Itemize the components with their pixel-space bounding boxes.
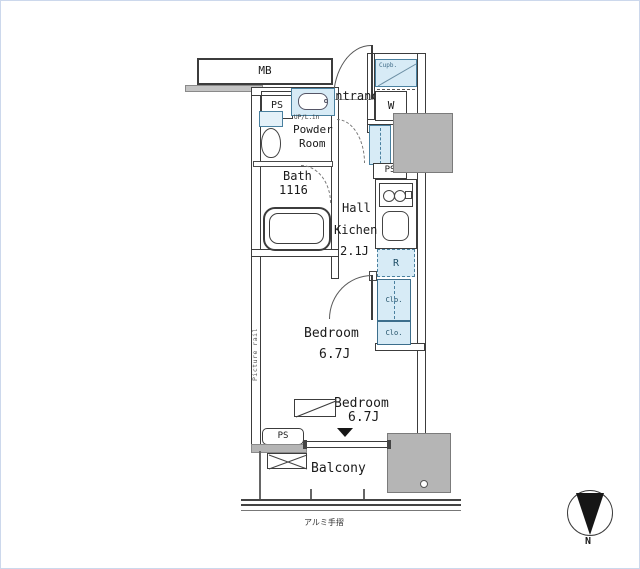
handrail-line-2	[241, 504, 461, 506]
pillar-top	[393, 113, 453, 173]
wall-left	[251, 87, 261, 451]
bedroom-door-arc	[329, 275, 372, 319]
closet-upper-dash	[394, 281, 395, 319]
ac-outdoor-unit	[267, 453, 307, 469]
window-frame-right	[387, 440, 391, 449]
stove	[379, 183, 413, 207]
bathtub	[263, 207, 331, 251]
bathtub-inner	[269, 213, 324, 244]
handrail-line-3	[241, 510, 461, 511]
picture-rail-label: Picture rail	[251, 297, 259, 381]
bedroom-door-leaf	[371, 275, 373, 320]
window-frame-left	[303, 440, 307, 449]
cupboard-label: Cupb.	[379, 63, 397, 70]
kitchen-size-label: 2.1J	[340, 245, 369, 258]
balcony-label: Balcony	[311, 462, 366, 476]
kitchen-label: Kichen	[334, 224, 377, 237]
ps-bottom-box: PS	[262, 428, 304, 445]
wall-right-upper	[417, 53, 426, 117]
bath-door-arc	[301, 165, 331, 203]
window-center-marker	[337, 428, 353, 437]
counter-shelf	[294, 399, 336, 417]
fridge-space: R	[377, 249, 415, 277]
stove-grill-icon	[405, 191, 412, 199]
powder-room-label-2: Room	[299, 138, 326, 150]
hall-label: Hall	[342, 202, 371, 215]
balcony-left-edge	[259, 451, 261, 499]
shoes-box	[369, 125, 391, 165]
cupboard-dashed-line	[377, 89, 415, 90]
washbasin-faucet	[324, 99, 328, 103]
powder-note: UP/L.in	[294, 115, 319, 122]
toilet-bowl	[261, 128, 281, 158]
meter-box-label: MB	[197, 58, 333, 85]
bedroom-size-label: 6.7J	[319, 348, 350, 362]
bedroom-size-label-2: 6.7J	[348, 411, 379, 425]
powder-room-label-1: Powder	[293, 124, 333, 136]
wall-powder-bath	[253, 161, 333, 167]
balcony-window	[305, 441, 389, 448]
counter-shelf-diagonal	[295, 400, 337, 418]
washbasin	[291, 88, 335, 116]
kitchen-sink	[382, 211, 409, 241]
handrail-label: アルミ手摺	[304, 519, 344, 528]
balcony-divider-tick	[310, 489, 312, 499]
balcony-divider-tick	[363, 489, 365, 499]
closet-lower: Clo.	[377, 321, 411, 345]
compass-north-label: N	[585, 536, 591, 547]
toilet-tank	[259, 111, 283, 127]
ac-unit-cross	[268, 454, 308, 470]
shoes-box-dash	[380, 128, 381, 164]
bedroom-label: Bedroom	[304, 327, 359, 341]
wall-right-main	[417, 167, 426, 437]
pillar-bottom	[387, 433, 451, 493]
floor-plan: MB Entrance Cupb. W PS UP/L.in Powder Ro…	[0, 0, 640, 569]
drain-cap	[420, 480, 428, 488]
powder-door-arc	[337, 119, 365, 163]
handrail-line-1	[241, 499, 461, 501]
